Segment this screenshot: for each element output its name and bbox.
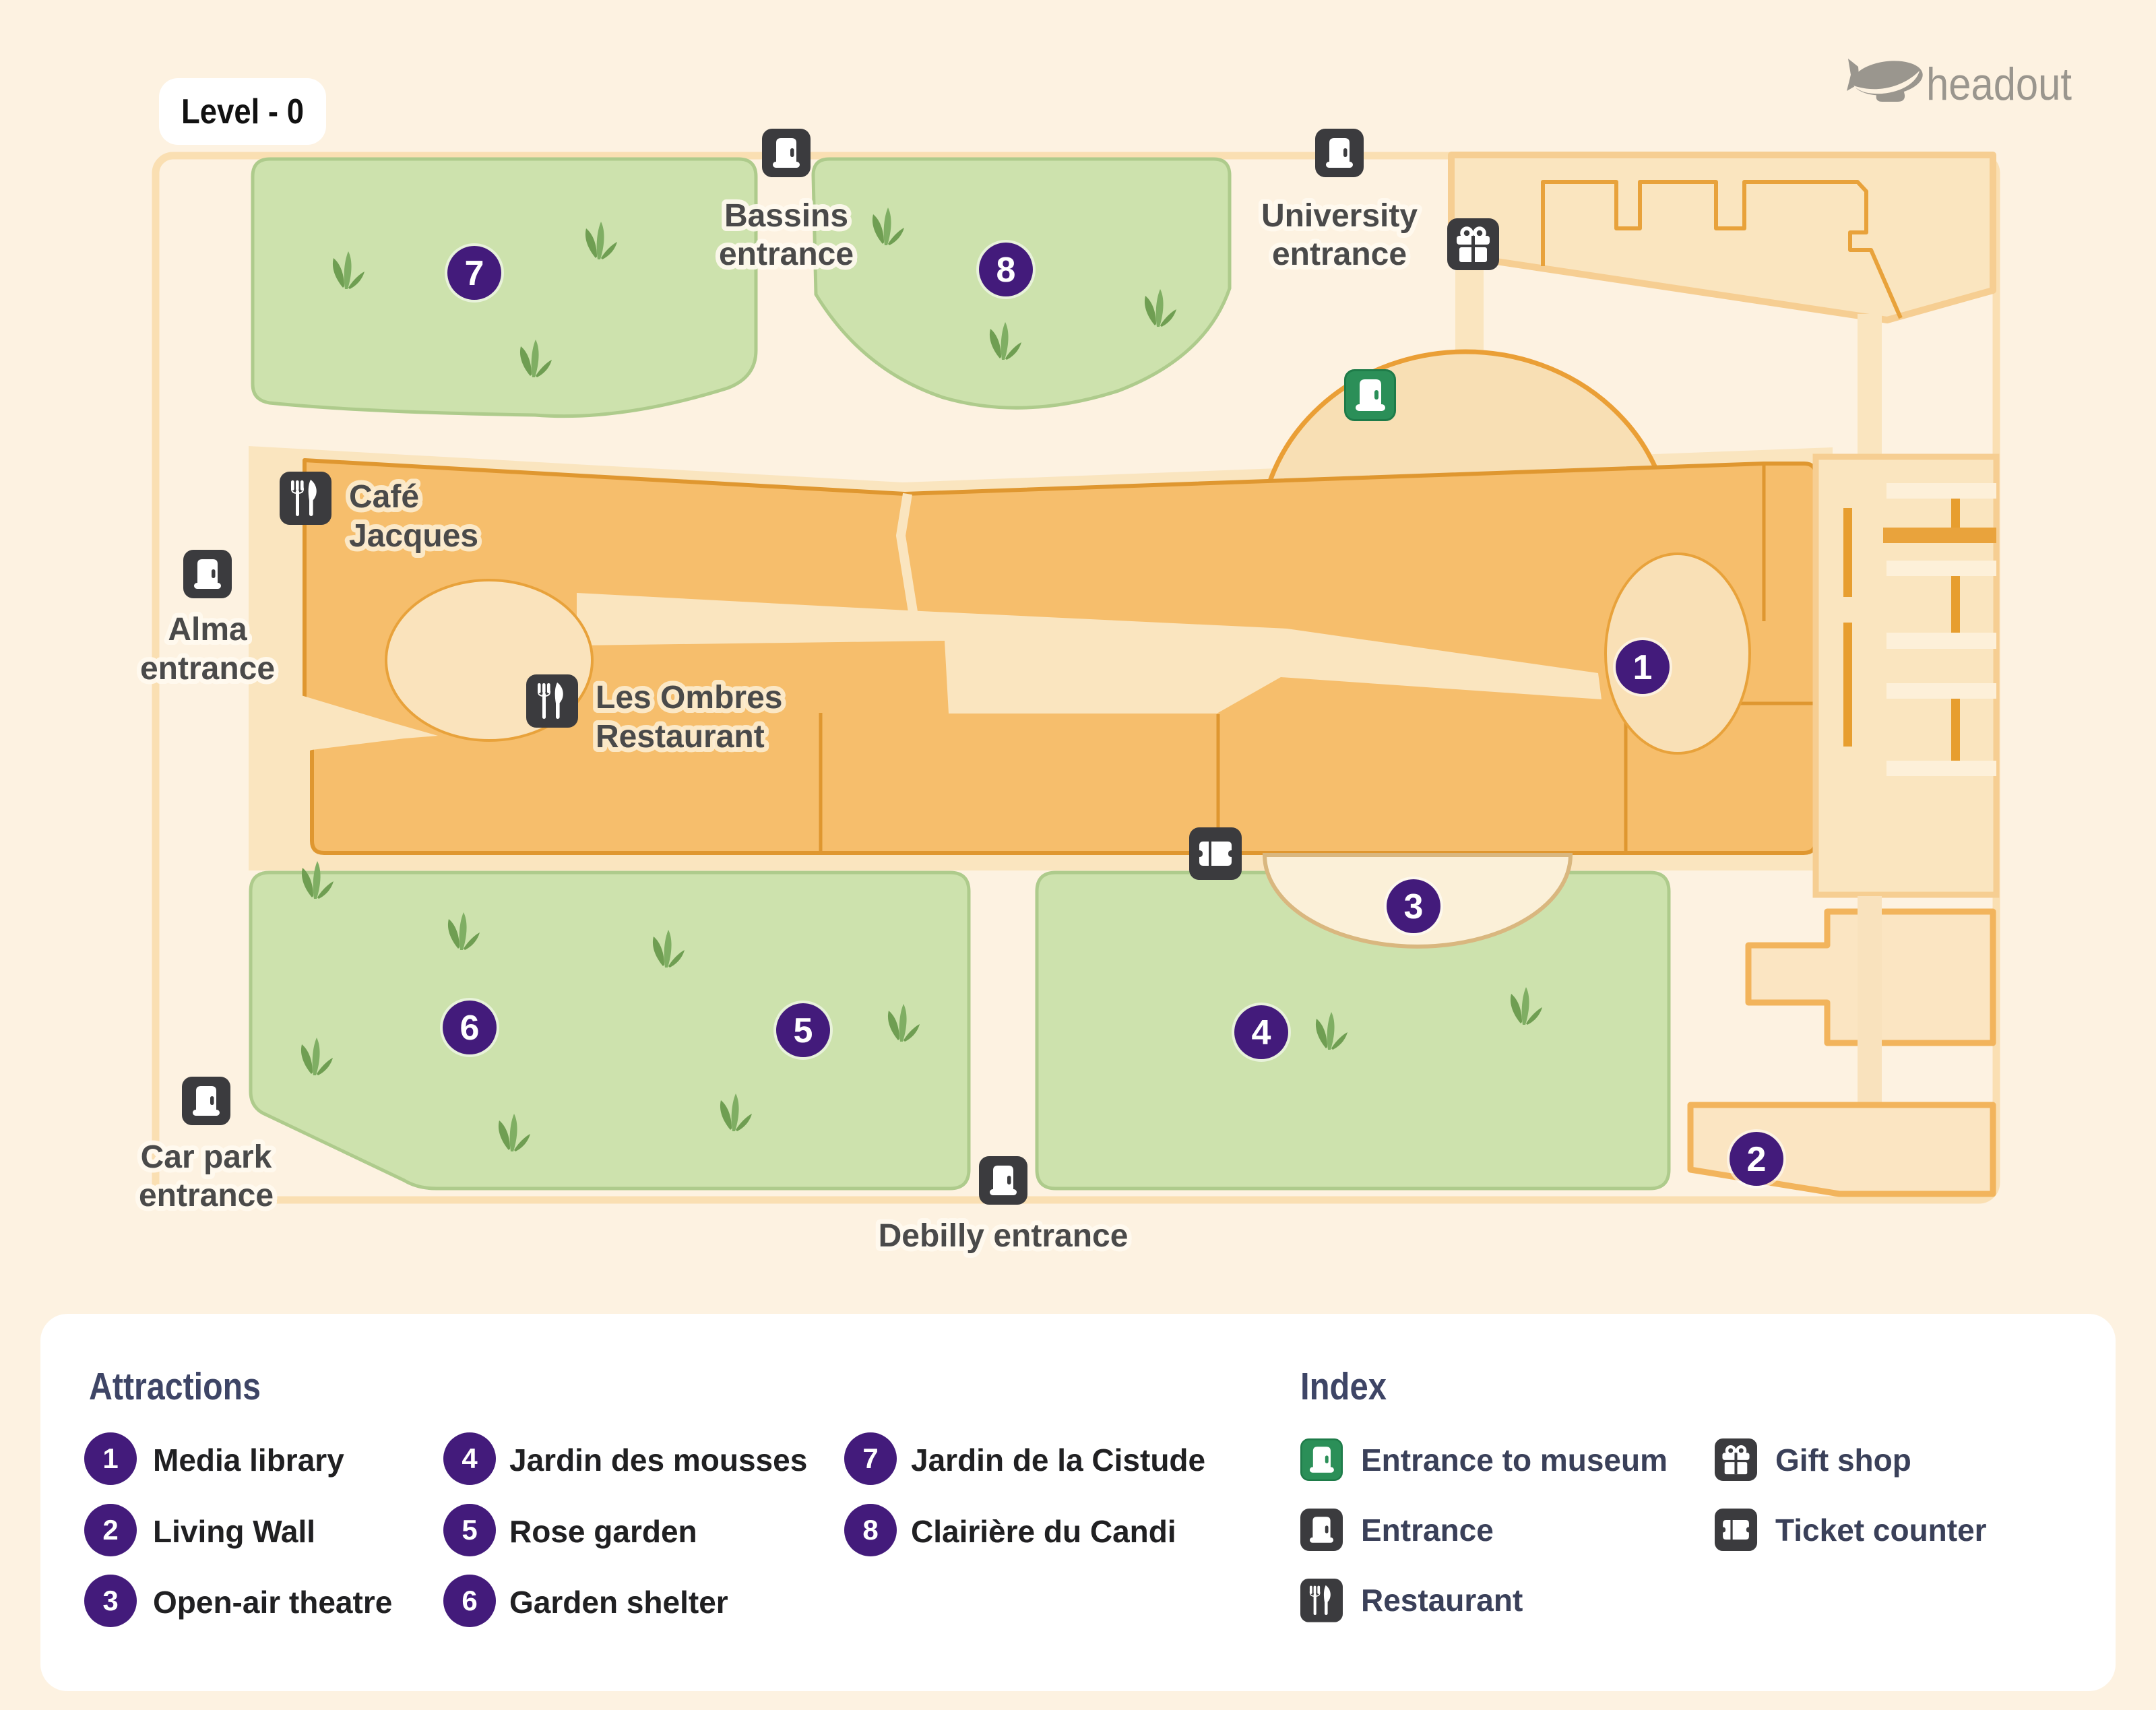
svg-text:Car park: Car park (141, 1139, 272, 1175)
svg-text:Level - 0: Level - 0 (181, 92, 304, 131)
svg-text:entrance: entrance (719, 236, 854, 272)
svg-text:7: 7 (465, 254, 484, 293)
svg-text:3: 3 (102, 1585, 118, 1616)
svg-text:Bassins: Bassins (724, 198, 848, 234)
svg-text:Clairière du Candi: Clairière du Candi (911, 1514, 1176, 1549)
svg-text:Garden shelter: Garden shelter (509, 1585, 728, 1620)
svg-text:Les Ombres: Les Ombres (596, 680, 782, 716)
svg-text:4: 4 (1252, 1013, 1271, 1052)
svg-text:Alma: Alma (168, 612, 247, 647)
svg-text:University: University (1261, 198, 1418, 234)
svg-text:Debilly entrance: Debilly entrance (879, 1218, 1129, 1254)
svg-text:5: 5 (794, 1011, 813, 1050)
svg-text:Media library: Media library (153, 1443, 344, 1478)
svg-text:Entrance: Entrance (1361, 1513, 1494, 1548)
svg-text:Entrance to museum: Entrance to museum (1361, 1443, 1668, 1478)
svg-text:entrance: entrance (1272, 236, 1407, 272)
svg-text:entrance: entrance (140, 651, 275, 687)
svg-text:Restaurant: Restaurant (596, 719, 765, 755)
svg-text:Index: Index (1300, 1365, 1387, 1408)
svg-text:6: 6 (460, 1009, 480, 1048)
svg-text:Restaurant: Restaurant (1361, 1583, 1523, 1618)
svg-text:4: 4 (462, 1443, 478, 1474)
svg-text:1: 1 (1633, 648, 1653, 687)
svg-text:Gift shop: Gift shop (1775, 1443, 1911, 1478)
svg-text:Jacques: Jacques (349, 518, 478, 554)
svg-text:1: 1 (102, 1443, 118, 1474)
svg-text:8: 8 (996, 251, 1016, 290)
svg-text:Jardin des mousses: Jardin des mousses (509, 1443, 807, 1478)
svg-text:Café: Café (349, 479, 419, 515)
svg-text:8: 8 (862, 1514, 878, 1546)
svg-text:Open-air theatre: Open-air theatre (153, 1585, 392, 1620)
svg-text:entrance: entrance (139, 1178, 274, 1213)
svg-text:2: 2 (1747, 1140, 1767, 1179)
svg-text:7: 7 (862, 1443, 878, 1474)
svg-text:3: 3 (1404, 887, 1424, 926)
svg-text:Rose garden: Rose garden (509, 1514, 697, 1549)
svg-text:Attractions: Attractions (89, 1365, 261, 1408)
svg-text:headout: headout (1926, 59, 2072, 110)
svg-text:5: 5 (462, 1514, 477, 1546)
svg-text:Living Wall: Living Wall (153, 1514, 315, 1549)
svg-text:Ticket counter: Ticket counter (1775, 1513, 1987, 1548)
svg-text:6: 6 (462, 1585, 477, 1616)
svg-text:Jardin de la Cistude: Jardin de la Cistude (911, 1443, 1205, 1478)
svg-text:2: 2 (102, 1514, 118, 1546)
